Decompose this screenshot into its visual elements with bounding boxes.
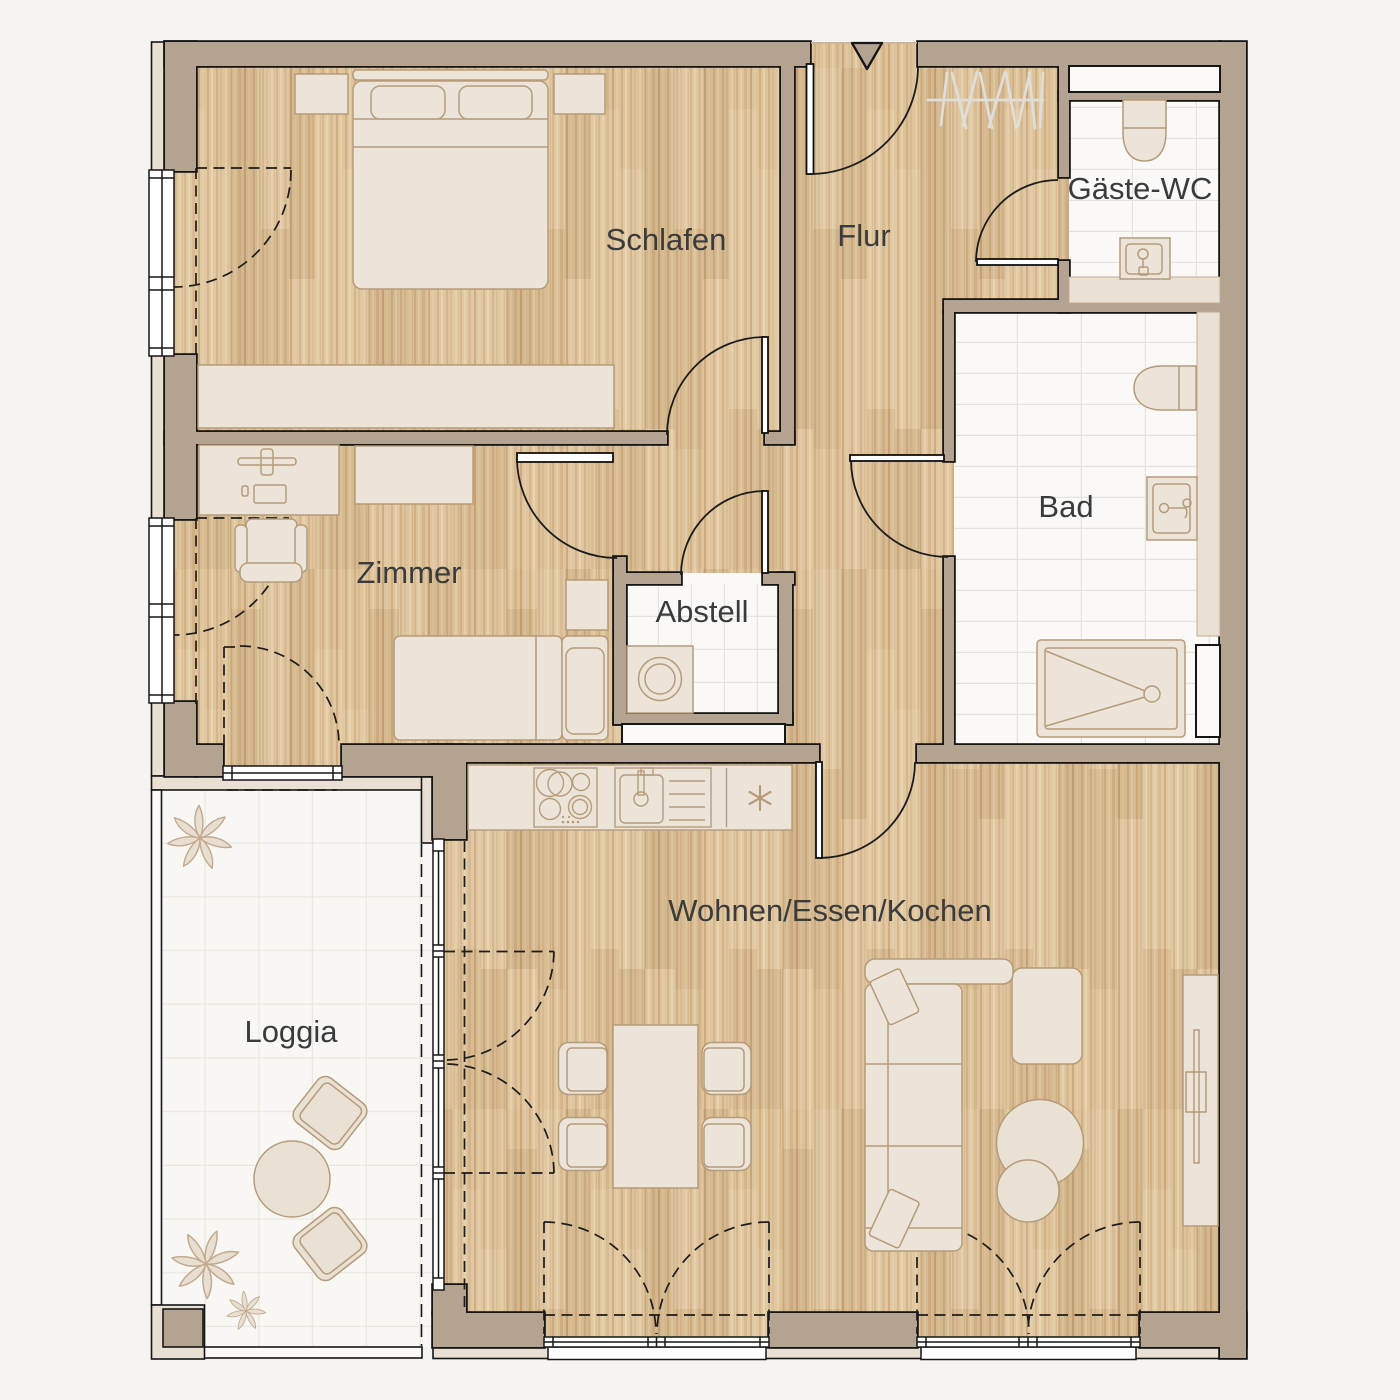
svg-text:Flur: Flur	[837, 218, 890, 253]
svg-text:Wohnen/Essen/Kochen: Wohnen/Essen/Kochen	[668, 893, 991, 928]
svg-text:Loggia: Loggia	[244, 1014, 338, 1049]
svg-text:Abstell: Abstell	[655, 594, 748, 629]
svg-text:Bad: Bad	[1038, 489, 1093, 524]
svg-text:Gäste-WC: Gäste-WC	[1068, 171, 1213, 206]
svg-text:Schlafen: Schlafen	[606, 222, 727, 257]
svg-text:Zimmer: Zimmer	[356, 555, 461, 590]
